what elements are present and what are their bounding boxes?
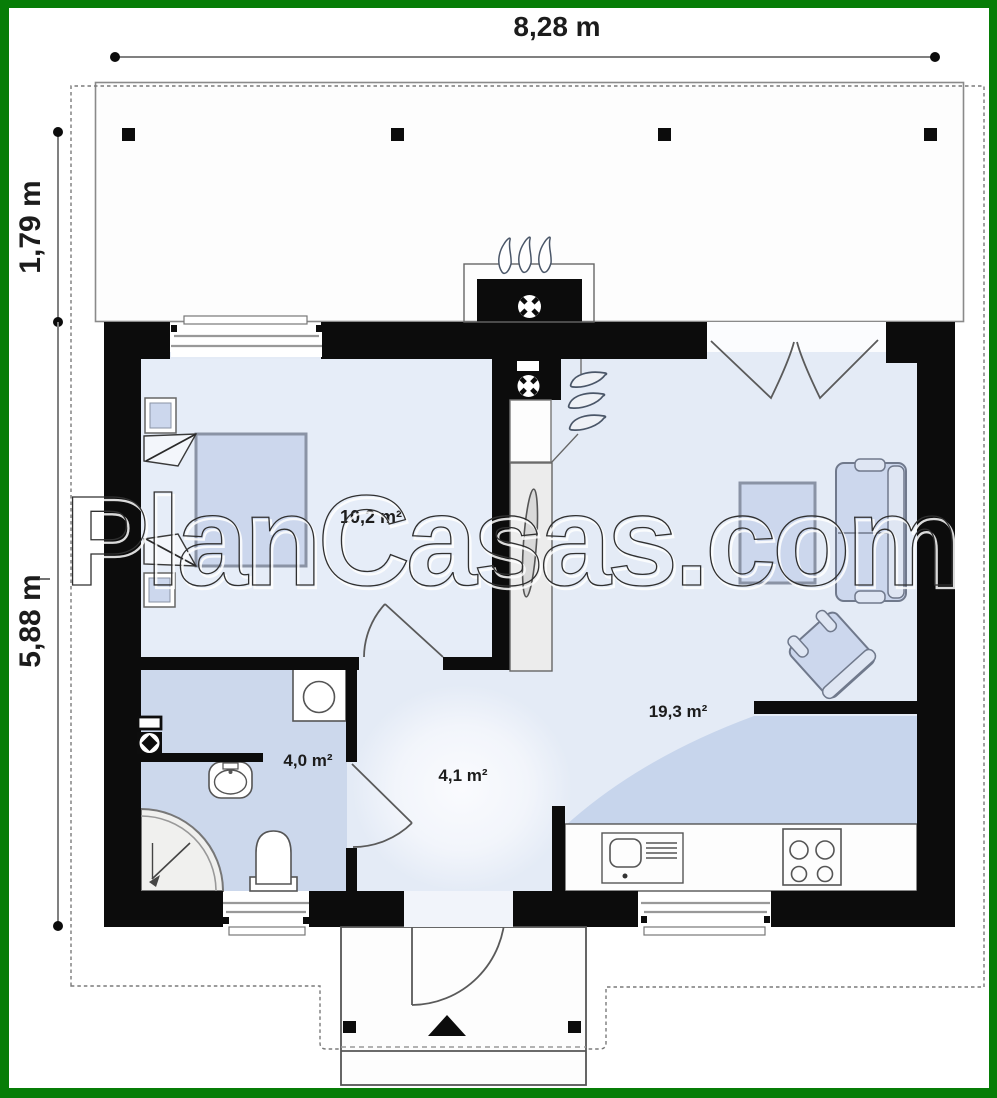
svg-text:1,79 m: 1,79 m [14,180,47,273]
svg-text:PlanCasas.com: PlanCasas.com [64,470,960,613]
svg-text:19,3 m²: 19,3 m² [649,702,708,721]
svg-text:4,1 m²: 4,1 m² [438,766,487,785]
svg-text:4,0 m²: 4,0 m² [283,751,332,770]
svg-text:5,88 m: 5,88 m [14,574,47,667]
svg-text:8,28 m: 8,28 m [513,11,600,42]
